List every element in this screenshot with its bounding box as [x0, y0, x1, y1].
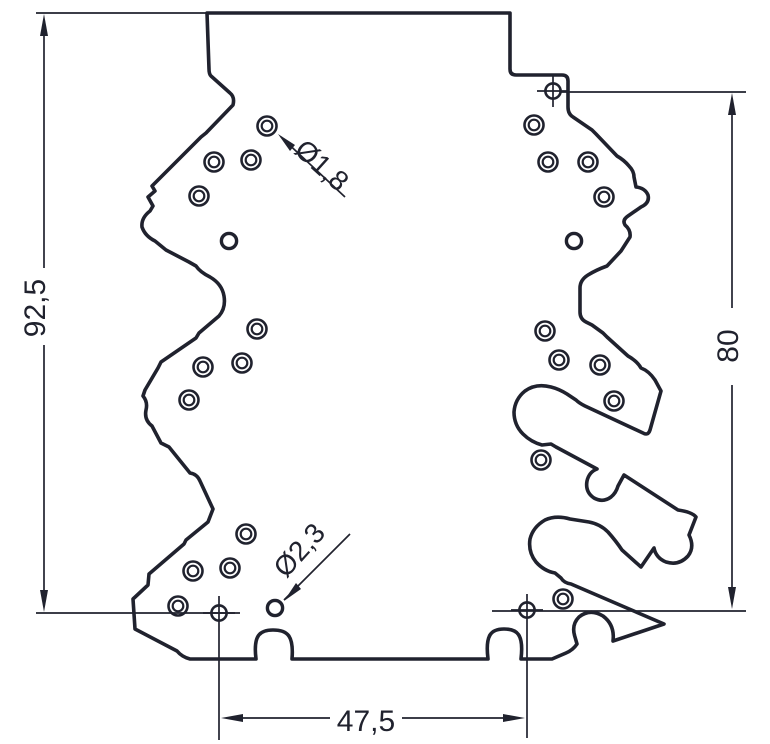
plated-hole-inner: [184, 395, 195, 406]
plated-hole-outer: [233, 354, 252, 373]
plated-hole-outer: [242, 151, 261, 170]
plated-hole-inner: [558, 594, 569, 605]
plated-hole-outer: [248, 320, 267, 339]
plated-hole-outer: [525, 116, 544, 135]
arrowhead-bottom-right: [503, 714, 525, 722]
plated-hole-outer: [258, 117, 277, 136]
plated-hole-outer: [591, 356, 610, 375]
plated-hole-inner: [595, 360, 606, 371]
plated-hole-outer: [550, 351, 569, 370]
labels: 92,5 80 47,5 Ø1,8 Ø2,3: [19, 133, 745, 738]
plated-hole-outer: [554, 590, 573, 609]
plated-hole-inner: [543, 157, 554, 168]
arrowhead-left-bottom: [40, 590, 48, 612]
arrowhead-bottom-left: [221, 714, 243, 722]
plated-hole-outer: [180, 391, 199, 410]
plated-hole-inner: [252, 324, 263, 335]
plated-hole-outer: [539, 153, 558, 172]
plain-hole: [221, 233, 236, 248]
plain-hole: [566, 233, 581, 248]
plated-hole-outer: [190, 187, 209, 206]
plated-hole-outer: [184, 562, 203, 581]
dimension-label-left-height: 92,5: [19, 279, 52, 337]
hole-pattern: [169, 83, 624, 620]
plated-hole-inner: [540, 326, 551, 337]
plated-hole-outer: [205, 153, 224, 172]
plated-hole-outer: [532, 451, 551, 470]
plated-hole-outer: [237, 525, 256, 544]
plated-hole-inner: [188, 566, 199, 577]
plated-hole-inner: [173, 601, 184, 612]
plated-hole-inner: [241, 529, 252, 540]
plated-hole-inner: [536, 455, 547, 466]
plated-hole-inner: [609, 396, 620, 407]
dimension-lines: [40, 14, 736, 722]
dimension-label-bottom-width: 47,5: [337, 705, 395, 738]
plated-hole-outer: [605, 392, 624, 411]
plated-hole-inner: [225, 563, 236, 574]
datum-crosshairs: [203, 75, 569, 613]
diameter-callout-large-hole: Ø2,3: [267, 517, 331, 583]
dimension-label-right-height: 80: [712, 329, 745, 362]
part-outline: [133, 13, 696, 659]
plated-hole-inner: [554, 355, 565, 366]
plated-hole-inner: [262, 121, 273, 132]
plated-hole-outer: [536, 322, 555, 341]
arrowhead-left-top: [40, 14, 48, 36]
plated-hole-inner: [198, 362, 209, 373]
plated-hole-outer: [221, 559, 240, 578]
dimension-drawing-canvas: 92,5 80 47,5 Ø1,8 Ø2,3: [0, 0, 770, 744]
diameter-callout-small-hole: Ø1,8: [289, 133, 355, 197]
plated-hole-inner: [529, 120, 540, 131]
plated-hole-outer: [194, 358, 213, 377]
arrowhead-right-bottom: [728, 587, 736, 609]
plated-hole-outer: [579, 153, 598, 172]
plated-hole-inner: [209, 157, 220, 168]
plated-hole-inner: [237, 358, 248, 369]
plated-hole-outer: [595, 188, 614, 207]
plain-hole: [267, 600, 282, 615]
plated-hole-inner: [599, 192, 610, 203]
arrowhead-right-top: [728, 93, 736, 115]
plated-hole-inner: [583, 157, 594, 168]
technical-drawing-page: 92,5 80 47,5 Ø1,8 Ø2,3: [0, 0, 770, 744]
plated-hole-inner: [246, 155, 257, 166]
plated-hole-inner: [194, 191, 205, 202]
